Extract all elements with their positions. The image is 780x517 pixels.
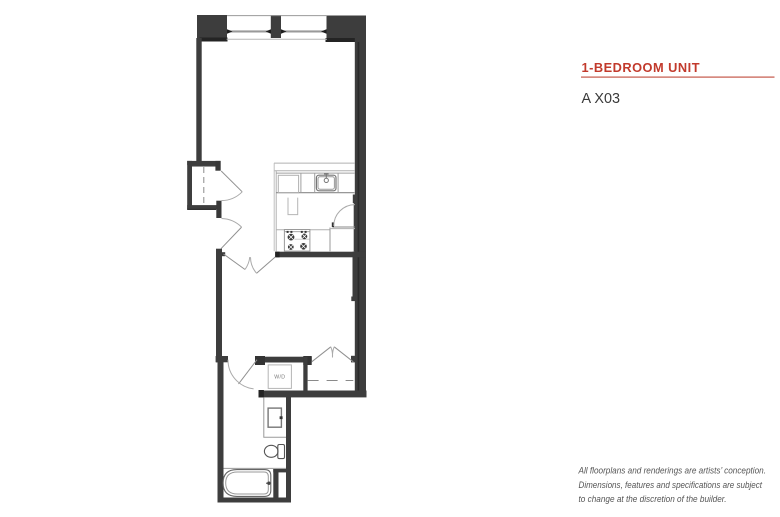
svg-text:A X03: A X03 (582, 91, 621, 107)
svg-text:W/D: W/D (274, 375, 285, 381)
svg-text:All floorplans and renderings: All floorplans and renderings are artist… (578, 466, 766, 476)
svg-text:to change at the discretion of: to change at the discretion of the build… (579, 494, 727, 504)
svg-text:1-BEDROOM UNIT: 1-BEDROOM UNIT (582, 60, 701, 75)
svg-text:Dimensions, features and speci: Dimensions, features and specifications … (579, 480, 763, 490)
